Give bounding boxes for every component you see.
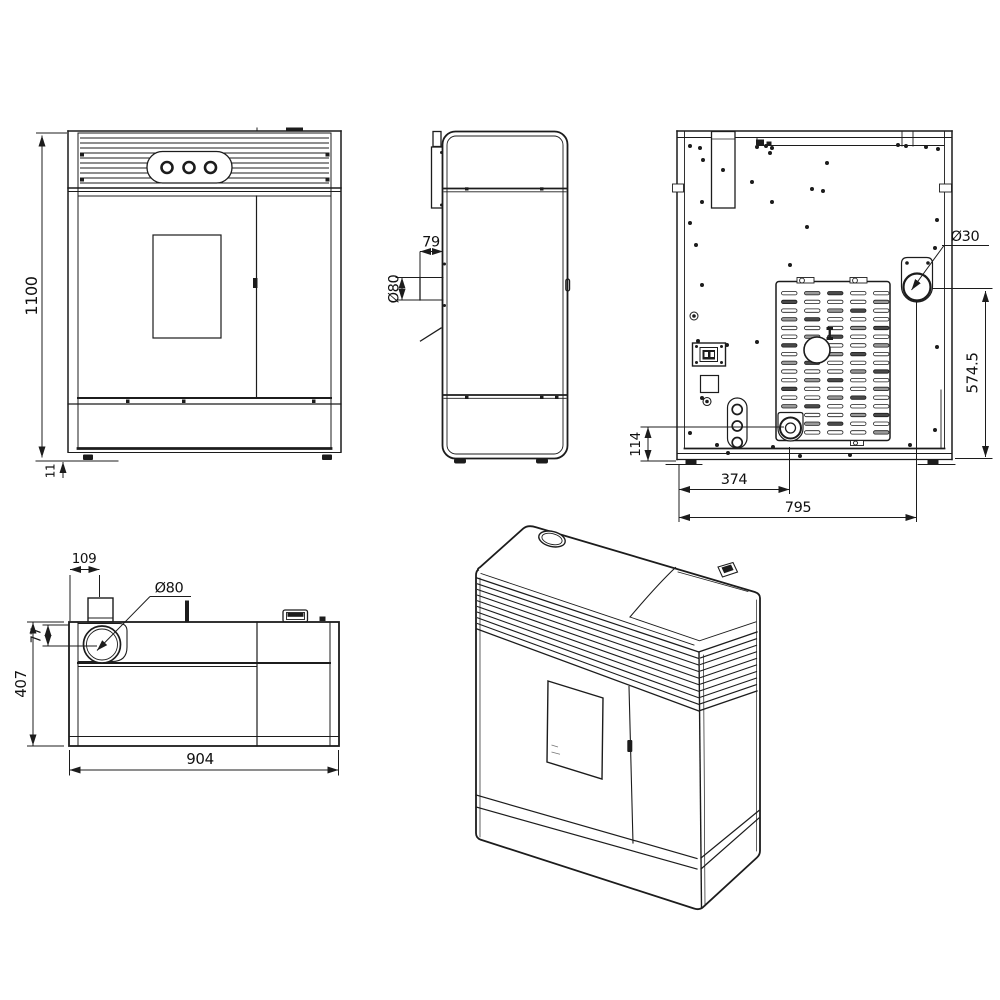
iso-louver-line: [477, 584, 699, 659]
vent-slot: [851, 370, 867, 373]
dim-top-overall-width: 904: [186, 750, 213, 768]
screw-dot: [750, 180, 754, 184]
vent-slot: [782, 361, 798, 364]
screw-dot: [936, 147, 940, 151]
iso-louver-line: [477, 589, 699, 665]
dim-front-overall-height: 1100: [22, 276, 41, 315]
iso-door-latch: [627, 740, 632, 752]
vent-slot: [782, 387, 798, 390]
grille-corner-mark: [326, 178, 330, 182]
dim-back-outlet-diameter: Ø30: [951, 229, 980, 245]
side-body: [443, 132, 568, 459]
stove-foot: [454, 459, 466, 464]
iso-door-edge: [629, 687, 633, 844]
dim-side-flue-rear-offset: 79: [422, 235, 440, 251]
vent-slot: [805, 405, 821, 408]
dim-top-flue-diameter: Ø80: [155, 581, 184, 597]
screw-dot: [701, 158, 705, 162]
screw-dot: [821, 189, 825, 193]
dim-back-outlet-height: 574.5: [964, 353, 982, 394]
vent-slot: [828, 379, 844, 382]
iso-top-flue-hole: [537, 528, 567, 549]
access-plate: [701, 376, 719, 393]
vent-slot: [828, 422, 844, 425]
dim-back-port-offset: 374: [721, 472, 748, 488]
handle-rod: [185, 601, 189, 623]
stove-foot: [928, 460, 939, 465]
dim-top-flue-offset-x: 109: [72, 551, 97, 567]
vent-slot: [805, 318, 821, 321]
iso-louver-line: [477, 606, 699, 684]
screw-dot: [825, 161, 829, 165]
vent-slot: [874, 387, 890, 390]
top-view: 109 Ø80 77 407 904: [12, 551, 339, 776]
technical-drawing-page: 1100 11 79 Ø80: [0, 0, 1000, 1000]
control-knob: [184, 162, 195, 173]
lever: [421, 328, 442, 341]
vent-slot: [874, 344, 890, 347]
grille-corner-mark: [326, 153, 330, 157]
dim-top-overall-depth: 407: [12, 670, 30, 697]
screw-dot: [933, 246, 937, 250]
dim-top-flue-offset-y: 77: [30, 628, 45, 644]
vent-slot: [805, 379, 821, 382]
door-latch: [253, 278, 258, 288]
air-intake-plate: [728, 398, 748, 448]
stove-foot: [83, 455, 93, 461]
screw-dot: [805, 225, 809, 229]
stove-foot: [536, 459, 548, 464]
rear-flue-channel: [432, 147, 444, 208]
screw-dot: [935, 218, 939, 222]
screw-dot: [933, 428, 937, 432]
vent-panel-hole: [804, 337, 830, 363]
screw-dot: [935, 345, 939, 349]
vent-slot: [874, 300, 890, 303]
dim-back-port-height: 114: [628, 432, 644, 457]
screw-dot: [896, 143, 900, 147]
screw-dot: [924, 145, 928, 149]
stove-foot: [322, 455, 332, 461]
screw-dot: [798, 454, 802, 458]
screw-dot: [688, 431, 692, 435]
iso-louver-line: [477, 612, 699, 691]
screw-dot: [721, 168, 725, 172]
screw-dot: [700, 283, 704, 287]
vent-slot: [782, 318, 798, 321]
screw-dot: [755, 340, 759, 344]
screw-dot: [726, 451, 730, 455]
vent-slot: [782, 405, 798, 408]
screw-dot: [698, 146, 702, 150]
vent-slot: [828, 309, 844, 312]
vent-slot: [805, 422, 821, 425]
screw-dot: [764, 144, 768, 148]
iso-louver-line: [477, 601, 699, 679]
screw-dot: [770, 200, 774, 204]
screw-dot: [908, 443, 912, 447]
screw-dot: [688, 221, 692, 225]
vent-slot: [851, 413, 867, 416]
control-knob: [205, 162, 216, 173]
top-lid-seam: [630, 568, 676, 618]
screw-dot: [788, 263, 792, 267]
side-view: 79 Ø80: [387, 132, 570, 464]
vent-slot: [874, 326, 890, 329]
screw-dot: [904, 144, 908, 148]
iso-grille-front: [477, 584, 699, 705]
screw-dot: [688, 144, 692, 148]
control-knob: [162, 162, 173, 173]
front-door-window: [153, 235, 221, 338]
vent-slot: [828, 292, 844, 295]
vent-slot: [851, 352, 867, 355]
dim-front-base-height: 11: [44, 464, 58, 478]
screw-dot: [810, 187, 814, 191]
screw-dot: [694, 243, 698, 247]
vent-slot: [782, 344, 798, 347]
vent-slot: [874, 413, 890, 416]
grille-corner-mark: [80, 178, 84, 182]
vent-slot: [805, 292, 821, 295]
iso-silhouette: [476, 526, 760, 909]
iso-door-window: [547, 681, 603, 779]
technical-drawing-canvas: 1100 11 79 Ø80: [0, 0, 1000, 1000]
vent-slot: [874, 370, 890, 373]
screw-dot: [770, 146, 774, 150]
dim-side-flue-diameter: Ø80: [387, 274, 403, 303]
dim-back-overall-width: 795: [785, 500, 811, 516]
vent-slot: [782, 300, 798, 303]
screw-dot: [768, 151, 772, 155]
vent-slot: [851, 326, 867, 329]
vent-slot: [851, 396, 867, 399]
grille-corner-mark: [80, 153, 84, 157]
screw-dot: [700, 200, 704, 204]
front-view: 1100 11: [22, 128, 341, 479]
vent-slot: [874, 431, 890, 434]
screw-dot: [755, 145, 759, 149]
screw-dot: [715, 443, 719, 447]
back-view: Ø30 574.5 114 374 795: [628, 131, 993, 522]
vent-slot: [828, 396, 844, 399]
stove-foot: [686, 460, 697, 465]
isometric-view: [476, 526, 760, 909]
iso-louver-line: [477, 595, 699, 672]
vent-slot: [851, 309, 867, 312]
